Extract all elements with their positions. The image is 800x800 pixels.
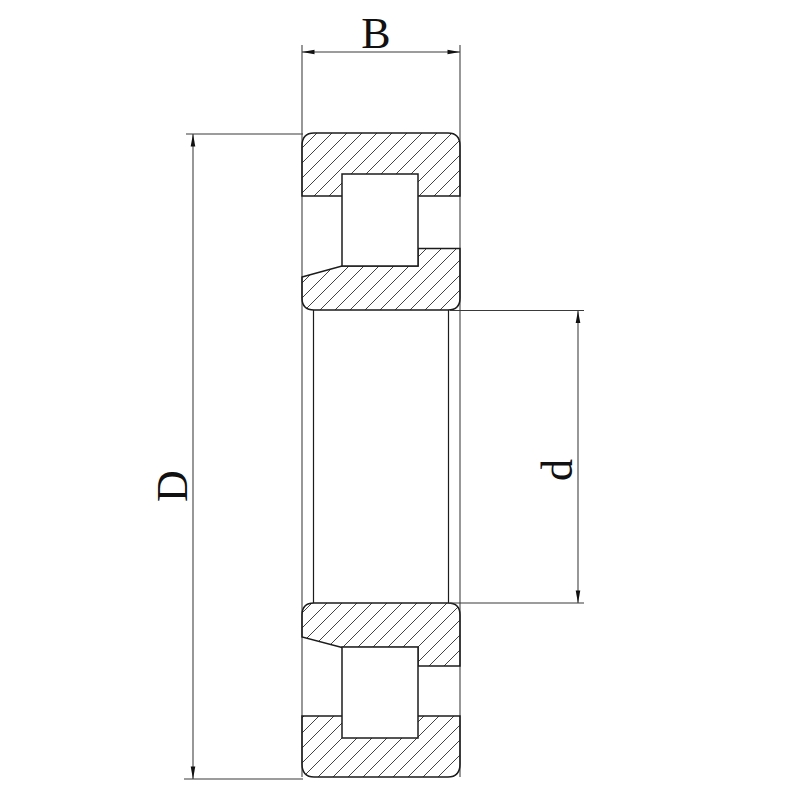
label-bore-diameter-d: d [533,459,582,481]
roller-bottom [342,647,418,738]
roller-top [342,174,418,266]
label-width-B: B [361,9,390,58]
technical-drawing-page: B D d [0,0,800,800]
bearing-cross-section-drawing: B D d [0,0,800,800]
label-outer-diameter-D: D [148,470,197,502]
